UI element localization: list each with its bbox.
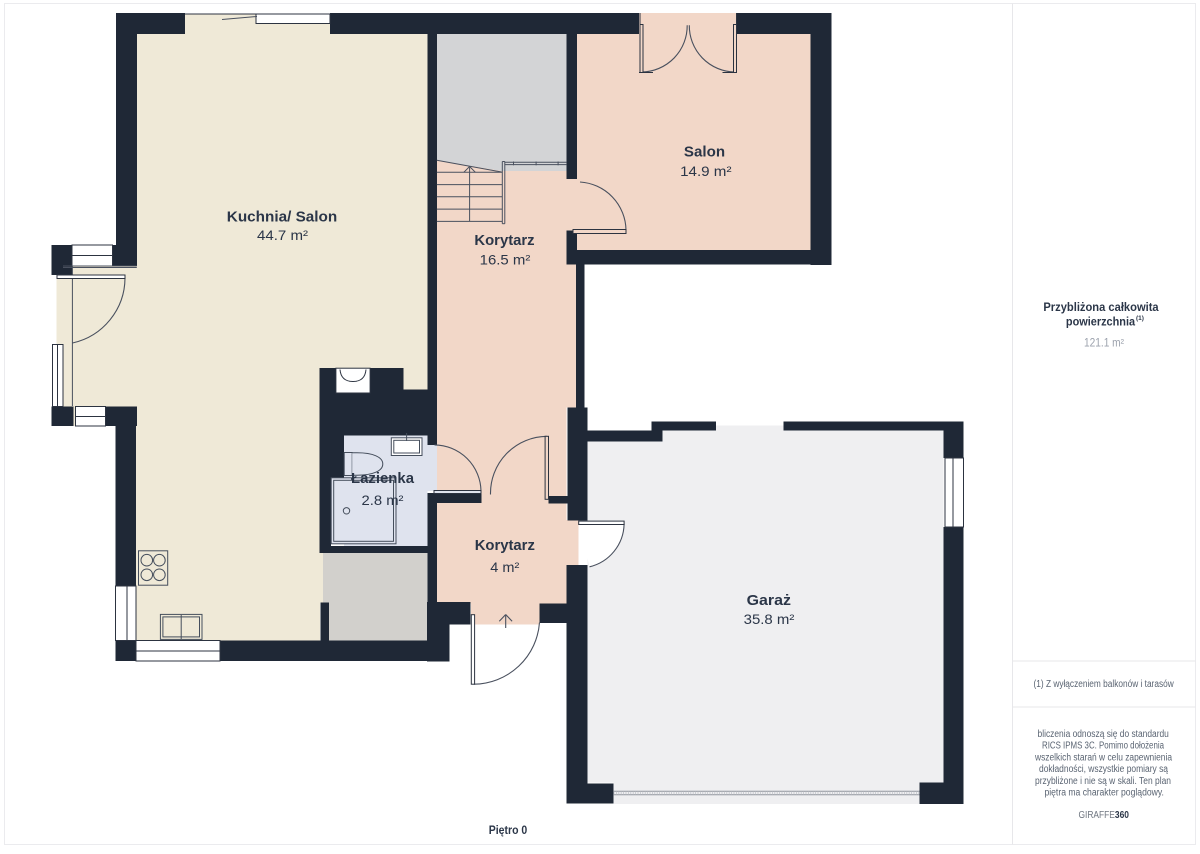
svg-text:Salon: Salon (684, 144, 725, 161)
svg-text:RICS IPMS 3C. Pomimo dołożenia: RICS IPMS 3C. Pomimo dołożenia (1042, 741, 1164, 752)
svg-text:Korytarz: Korytarz (475, 537, 535, 554)
svg-text:powierzchnia: powierzchnia (1066, 317, 1136, 329)
svg-text:wszelkich starań w celu zapewn: wszelkich starań w celu zapewnienia (1034, 752, 1172, 763)
svg-text:35.8 m²: 35.8 m² (744, 611, 795, 627)
svg-text:121.1 m²: 121.1 m² (1084, 337, 1124, 349)
svg-text:4 m²: 4 m² (490, 559, 519, 575)
svg-text:44.7 m²: 44.7 m² (257, 227, 308, 243)
svg-text:bliczenia odnoszą się do stand: bliczenia odnoszą się do standardu (1038, 729, 1169, 740)
svg-text:GIRAFFE360: GIRAFFE360 (1078, 810, 1129, 821)
svg-text:14.9 m²: 14.9 m² (680, 163, 732, 179)
svg-text:(1): (1) (1136, 315, 1144, 322)
svg-text:16.5 m²: 16.5 m² (480, 252, 531, 268)
svg-text:(1) Z wyłączeniem balkonów i t: (1) Z wyłączeniem balkonów i tarasów (1034, 679, 1175, 690)
svg-text:Przybliżona całkowita: Przybliżona całkowita (1043, 302, 1159, 314)
svg-text:piętra ma charakter poglądowy.: piętra ma charakter poglądowy. (1044, 788, 1164, 799)
svg-text:Kuchnia/ Salon: Kuchnia/ Salon (227, 208, 337, 225)
svg-text:2.8 m²: 2.8 m² (362, 492, 404, 508)
svg-text:Garaż: Garaż (747, 592, 791, 609)
svg-text:Piętro 0: Piętro 0 (489, 823, 528, 837)
svg-text:Korytarz: Korytarz (474, 232, 534, 249)
svg-text:dokładności, wszystkie pomiary: dokładności, wszystkie pomiary są (1039, 764, 1168, 775)
svg-text:Łazienka: Łazienka (351, 470, 415, 487)
svg-text:przybliżone i nie są w skali.: przybliżone i nie są w skali. Ten plan (1035, 776, 1171, 787)
